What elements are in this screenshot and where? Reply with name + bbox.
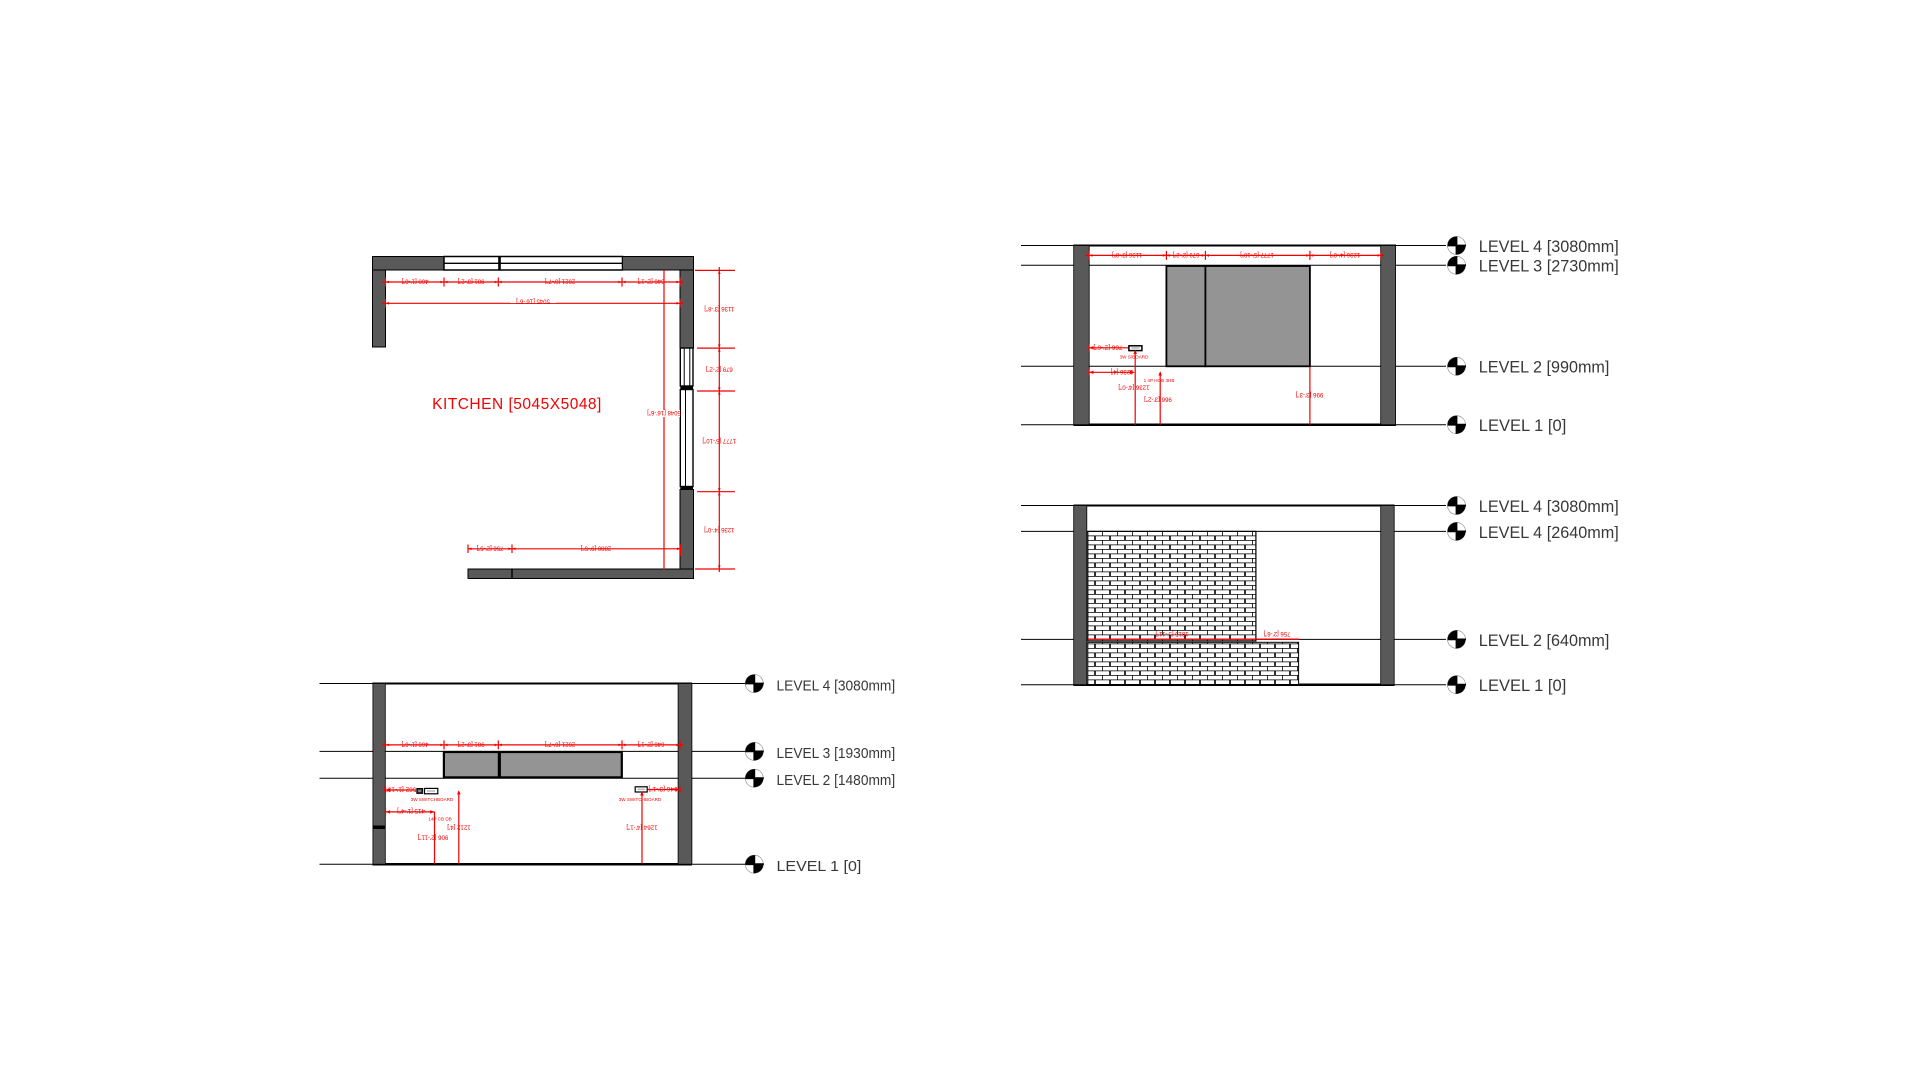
svg-text:679 [2'-2"]: 679 [2'-2"] xyxy=(1172,251,1199,257)
svg-text:2021 [6'-7"]: 2021 [6'-7"] xyxy=(545,741,576,747)
svg-text:766 [2'-6"]: 766 [2'-6"] xyxy=(1093,343,1122,350)
svg-text:460 [1'-6"]: 460 [1'-6"] xyxy=(401,278,428,284)
svg-text:2880 [9'-5"]: 2880 [9'-5"] xyxy=(581,545,612,551)
svg-text:LEVEL 4 [3080mm]: LEVEL 4 [3080mm] xyxy=(777,678,896,694)
svg-text:LEVEL 4 [3080mm]: LEVEL 4 [3080mm] xyxy=(1479,238,1619,256)
svg-text:1777 [5'-10"]: 1777 [5'-10"] xyxy=(1240,251,1274,257)
svg-text:LEVEL 4 [2640mm]: LEVEL 4 [2640mm] xyxy=(1479,524,1619,542)
svg-text:LEVEL 4 [3080mm]: LEVEL 4 [3080mm] xyxy=(1479,498,1619,516)
svg-text:LEVEL 2 [1480mm]: LEVEL 2 [1480mm] xyxy=(777,773,896,789)
svg-text:981 [3'-2"]: 981 [3'-2"] xyxy=(457,741,484,747)
svg-text:679 [2'-2"]: 679 [2'-2"] xyxy=(705,365,732,371)
svg-text:906 [2'-11"]: 906 [2'-11"] xyxy=(417,834,448,841)
svg-text:1264 [4'-1"]: 1264 [4'-1"] xyxy=(626,824,658,831)
svg-text:LEVEL 3 [1930mm]: LEVEL 3 [1930mm] xyxy=(777,746,896,762)
svg-text:562 [1'-10"]: 562 [1'-10"] xyxy=(383,786,416,793)
svg-text:KITCHEN [5045X5048]: KITCHEN [5045X5048] xyxy=(432,396,602,413)
svg-text:1815 [5'-11"]: 1815 [5'-11"] xyxy=(1155,630,1189,636)
svg-text:966 [3'-2"]: 966 [3'-2"] xyxy=(1144,396,1172,403)
svg-text:2021 [6'-7"]: 2021 [6'-7"] xyxy=(545,278,576,284)
svg-text:646 [2'-1"]: 646 [2'-1"] xyxy=(637,741,664,747)
svg-text:996 [3'-3"]: 996 [3'-3"] xyxy=(1295,391,1323,398)
svg-text:LEVEL 3 [2730mm]: LEVEL 3 [2730mm] xyxy=(1479,258,1619,276)
svg-text:3W SWITCHBOARD: 3W SWITCHBOARD xyxy=(411,797,454,802)
svg-text:1212 [4']: 1212 [4'] xyxy=(447,824,471,831)
svg-text:3W SWITCHBOARD: 3W SWITCHBOARD xyxy=(619,797,662,802)
svg-text:946 [3'-1"]: 946 [3'-1"] xyxy=(648,785,677,792)
svg-text:14P CB DB: 14P CB DB xyxy=(428,817,451,822)
svg-text:415 [1'-4"]: 415 [1'-4"] xyxy=(397,807,425,814)
svg-text:1136 [3'-8"]: 1136 [3'-8"] xyxy=(704,305,734,311)
svg-text:LEVEL 1 [0]: LEVEL 1 [0] xyxy=(1479,417,1567,435)
svg-text:646 [2'-1"]: 646 [2'-1"] xyxy=(637,278,664,284)
svg-text:1777 [5'-10"]: 1777 [5'-10"] xyxy=(702,437,736,443)
svg-text:LEVEL 2 [640mm]: LEVEL 2 [640mm] xyxy=(1479,632,1610,650)
svg-text:3W S/BOARD: 3W S/BOARD xyxy=(1120,355,1150,360)
svg-text:756 [2'-6"]: 756 [2'-6"] xyxy=(1263,630,1290,636)
svg-text:460 [1'-6"]: 460 [1'-6"] xyxy=(401,741,428,747)
svg-text:1 4P HOB 3HB: 1 4P HOB 3HB xyxy=(1144,378,1175,383)
svg-text:1236 [4'-0"]: 1236 [4'-0"] xyxy=(704,526,735,532)
svg-text:LEVEL 1 [0]: LEVEL 1 [0] xyxy=(777,859,862,875)
svg-text:1136 [3'-8"]: 1136 [3'-8"] xyxy=(1112,251,1142,257)
svg-text:756 [2'-5"]: 756 [2'-5"] xyxy=(476,545,503,551)
svg-text:LEVEL 1 [0]: LEVEL 1 [0] xyxy=(1479,677,1567,695)
svg-text:1236 [4'-0"]: 1236 [4'-0"] xyxy=(1118,384,1150,391)
svg-text:LEVEL 2 [990mm]: LEVEL 2 [990mm] xyxy=(1479,359,1610,377)
svg-text:1236 [4']: 1236 [4'] xyxy=(1110,368,1133,374)
svg-text:1236 [4'-0"]: 1236 [4'-0"] xyxy=(1330,251,1361,257)
svg-text:5045 [16'-6"]: 5045 [16'-6"] xyxy=(516,298,550,304)
svg-text:981 [3'-2"]: 981 [3'-2"] xyxy=(457,278,484,284)
svg-text:5048 [16'-6"]: 5048 [16'-6"] xyxy=(647,409,681,415)
